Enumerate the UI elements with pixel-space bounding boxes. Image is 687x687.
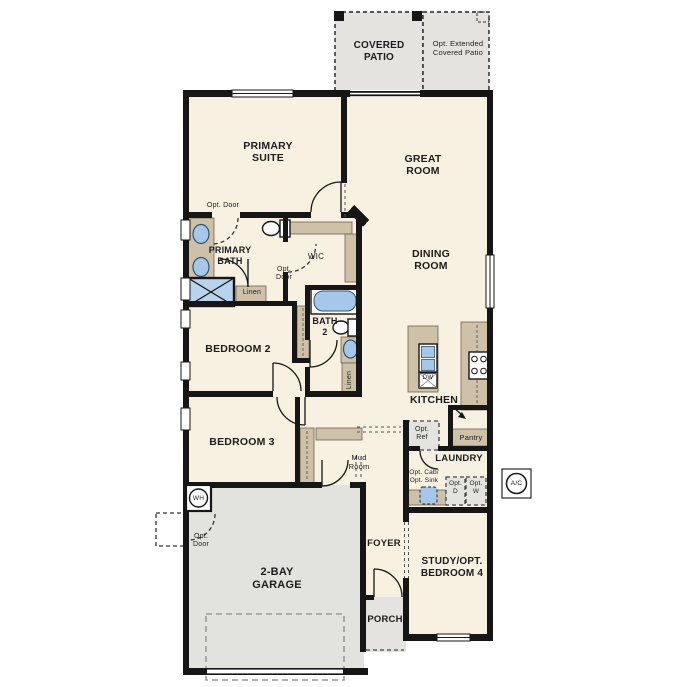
label-primary-suite: PRIMARY SUITE [233, 140, 303, 165]
label-pantry: Pantry [449, 434, 493, 443]
room-fills [186, 93, 491, 670]
label-opt-cab-sink: Opt. Cab/ Opt. Sink [400, 469, 448, 484]
label-foyer: FOYER [359, 538, 409, 549]
label-mud-room: Mud Room [343, 454, 375, 472]
wic-shelf [288, 222, 352, 234]
mudroom-bench [316, 428, 362, 440]
label-kitchen: KITCHEN [394, 394, 474, 406]
label-opt-ref: Opt. Ref [409, 426, 435, 443]
label-opt-door-garage: Opt. Door [187, 533, 215, 550]
label-opt-door-suite: Opt. Door [193, 202, 253, 210]
opt-laundry-sink [420, 487, 437, 504]
label-laundry: LAUNDRY [423, 453, 495, 464]
label-bedroom-2: BEDROOM 2 [178, 343, 298, 355]
label-study: STUDY/OPT. BEDROOM 4 [410, 556, 494, 580]
toilet-bowl [263, 222, 280, 236]
bathroom-sink [193, 225, 209, 244]
bathtub-basin [314, 291, 356, 311]
label-wh: WH [187, 495, 211, 503]
patio-post [412, 11, 422, 21]
label-opt-dryer: Opt. D [446, 480, 466, 495]
label-wic: WIC [296, 252, 336, 261]
label-dining-room: DINING ROOM [404, 248, 458, 273]
label-opt-washer: Opt. W [466, 480, 486, 495]
toilet-tank [348, 319, 357, 336]
label-linen: Linen [232, 289, 272, 297]
label-opt-door-wic: Opt. Door [271, 266, 297, 283]
range [469, 352, 489, 379]
patio-post [334, 11, 344, 21]
label-porch: PORCH [360, 614, 410, 625]
floor-plan: COVERED PATIO Opt. Extended Covered Pati… [0, 0, 687, 687]
label-opt-extended-patio: Opt. Extended Covered Patio [426, 40, 490, 58]
label-dishwasher: DW [418, 375, 438, 382]
label-bedroom-3: BEDROOM 3 [182, 436, 302, 448]
label-garage: 2-BAY GARAGE [241, 566, 313, 592]
label-primary-bath: PRIMARY BATH [202, 245, 258, 266]
opt-garage-door-box [156, 513, 185, 546]
label-linen-2: Linen [346, 360, 354, 400]
label-ac: A/C [505, 480, 529, 488]
bathroom-sink [344, 340, 358, 358]
label-great-room: GREAT ROOM [398, 153, 448, 178]
label-bath-2: BATH 2 [310, 316, 340, 337]
wic-shelf [345, 234, 357, 282]
floor-plan-drawing [0, 0, 687, 687]
label-covered-patio: COVERED PATIO [346, 40, 412, 64]
